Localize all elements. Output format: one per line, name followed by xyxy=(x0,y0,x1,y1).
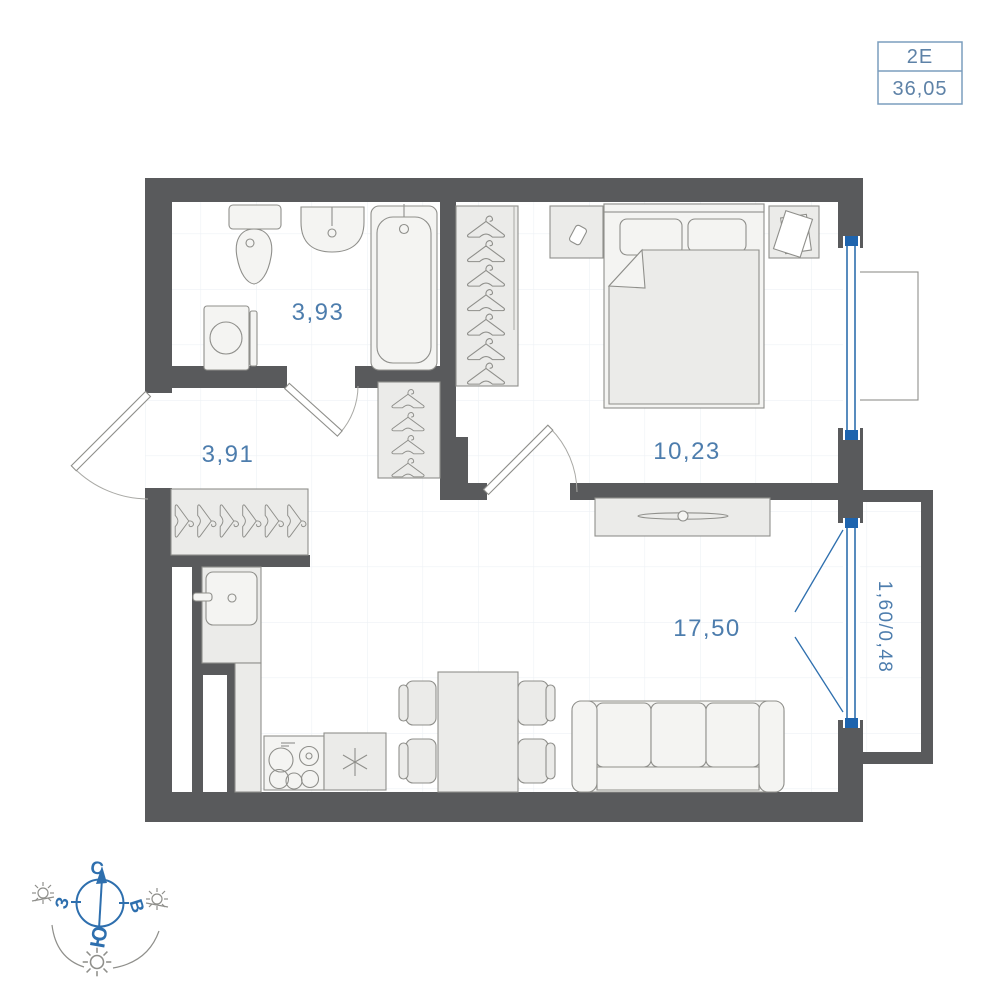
kitchen-counter-strip xyxy=(235,663,261,792)
stove-icon xyxy=(264,736,324,790)
compass-west-label: З xyxy=(51,895,73,911)
chair-icon xyxy=(518,739,555,783)
vent-shaft-2 xyxy=(203,675,227,792)
wall-bottom xyxy=(145,792,863,822)
bathroom-sink-icon xyxy=(301,207,364,252)
wall-right-mid xyxy=(838,428,863,523)
entrance-door-icon xyxy=(71,392,150,499)
pillow-icon xyxy=(688,219,746,252)
wall-left-lower xyxy=(145,488,172,822)
wall-top xyxy=(145,178,863,202)
hallway-wardrobe-wide xyxy=(171,489,308,555)
unit-badge: 2Е 36,05 xyxy=(878,42,962,104)
bed-icon xyxy=(604,204,764,408)
unit-type-label: 2Е xyxy=(907,46,933,68)
tv-console-icon xyxy=(595,498,770,536)
sun-icon xyxy=(83,948,112,977)
chair-icon xyxy=(518,681,555,725)
wall-left-upper xyxy=(145,178,172,393)
washing-machine-icon xyxy=(204,306,257,370)
bathtub-icon xyxy=(371,204,437,370)
desk-icon xyxy=(550,206,603,258)
wall-closet-bottom xyxy=(145,555,310,567)
wall-bedroom-door-stub xyxy=(440,483,487,500)
balcony-wall-bottom xyxy=(855,752,933,764)
window-basket xyxy=(858,272,918,400)
bedroom-window-icon xyxy=(843,236,860,440)
hallway-wardrobe-small xyxy=(378,382,440,478)
wall-shaft2-rim-top xyxy=(203,663,236,675)
compass-north-label: С xyxy=(89,857,105,879)
sofa-icon xyxy=(572,701,784,792)
unit-area-value: 36,05 xyxy=(892,78,947,100)
vent-shaft-1 xyxy=(172,567,192,792)
bathroom-area-label: 3,93 xyxy=(292,299,345,326)
hallway-area-label: 3,91 xyxy=(202,441,255,468)
floor-plan-page: 3,93 3,91 10,23 17,50 1,60/0,48 2Е 36,05… xyxy=(0,0,1000,1000)
chair-icon xyxy=(399,739,436,783)
compass-south-label: Ю xyxy=(86,924,112,949)
compass-icon: С З В Ю xyxy=(32,857,168,976)
balcony-area-label: 1,60/0,48 xyxy=(874,581,895,674)
dining-table-icon xyxy=(438,672,518,792)
bedroom-wardrobe xyxy=(456,206,518,386)
living-kitchen-area-label: 17,50 xyxy=(673,615,741,642)
compass-east-label: В xyxy=(125,897,148,916)
nightstand-icon xyxy=(769,206,819,258)
fridge-spot-icon xyxy=(324,733,386,790)
floor-plan-svg: 3,93 3,91 10,23 17,50 1,60/0,48 2Е 36,05… xyxy=(0,0,1000,1000)
chair-icon xyxy=(399,681,436,725)
bedroom-area-label: 10,23 xyxy=(653,438,721,465)
balcony-wall-right xyxy=(921,490,933,764)
